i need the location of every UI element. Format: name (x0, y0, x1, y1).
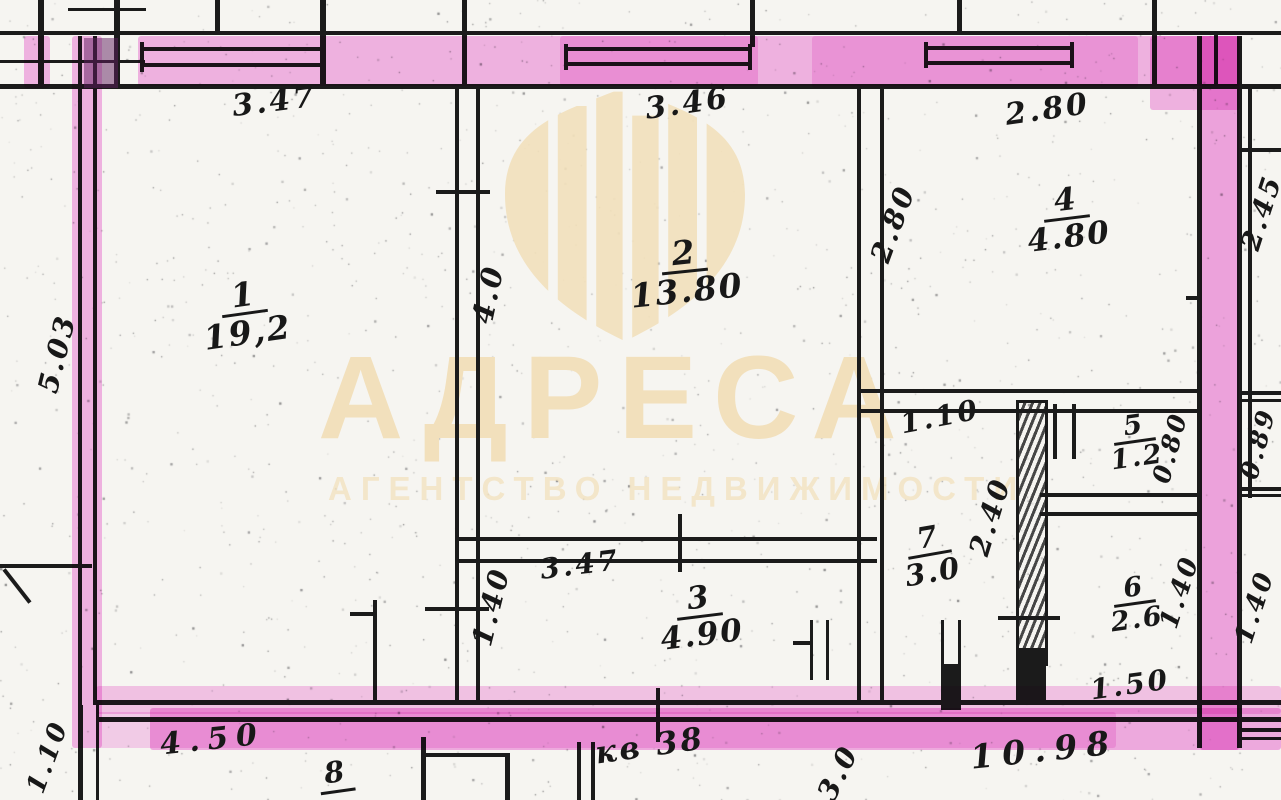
highlight-top-wall (812, 36, 1138, 88)
dimension-tick (1240, 148, 1281, 152)
door-tick-room6 (998, 616, 1060, 620)
highlight-top-wall (560, 36, 758, 86)
wall-room2-room3 (455, 537, 877, 563)
lower-wall-line (505, 753, 510, 800)
lower-wall-line (577, 742, 581, 800)
highlight-left-wall (72, 36, 102, 748)
highlight-corner-hatch (84, 38, 118, 88)
top-left-ledge-line (68, 8, 146, 11)
room-label-5: 5 1.2 (1091, 405, 1179, 479)
room-label-1: 1 19,2 (180, 267, 310, 360)
dimension-tick (678, 514, 682, 572)
room-label-4: 4 4.80 (1008, 176, 1126, 262)
dimension-tick (350, 612, 376, 616)
ventilation-duct (1016, 400, 1048, 666)
watermark-subtitle: АГЕНТСТВО НЕДВИЖИМОСТИ (328, 470, 1026, 508)
watermark-brand: АДРЕСА (318, 330, 913, 466)
top-stub-line (957, 0, 962, 33)
dimension-tick (1242, 494, 1281, 497)
door-tick-room3 (793, 641, 811, 645)
lower-wall-tick (425, 753, 507, 757)
highlight-top-left (24, 36, 50, 88)
wall-stub-room5 (1053, 404, 1076, 459)
room-label-6: 6 2.6 (1086, 566, 1184, 641)
dimension-tick (1242, 391, 1281, 395)
dimension-tick (436, 190, 490, 194)
top-wall-outer-line (0, 31, 1281, 35)
outside-room-number: 8 (316, 753, 356, 792)
floor-plan: АДРЕСА АГЕНТСТВО НЕДВИЖИМОСТИ (0, 0, 1281, 800)
dimension-tick (1242, 487, 1281, 491)
room-label-2: 2 13.80 (611, 226, 758, 317)
dimension-tick (1186, 296, 1200, 300)
door-leaf-room3 (810, 620, 829, 680)
wall-room5-room6 (1040, 493, 1197, 516)
room-label-3: 3 4.90 (636, 573, 764, 660)
top-stub-line (215, 0, 220, 34)
